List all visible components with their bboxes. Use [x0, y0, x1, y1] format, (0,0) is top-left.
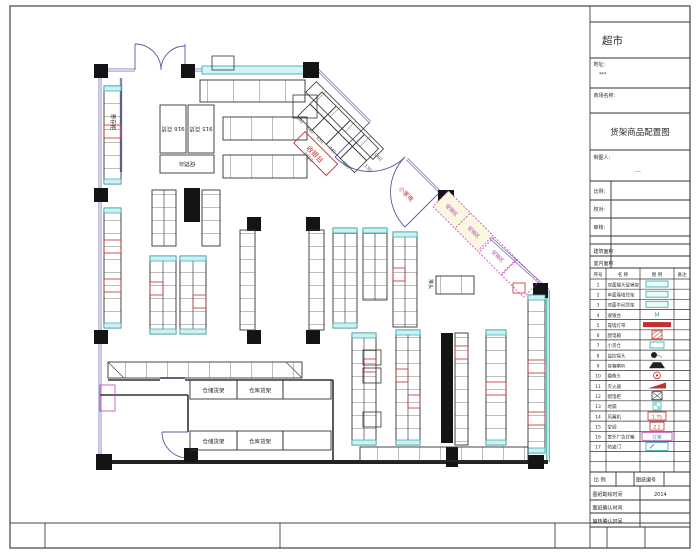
legend-row-name: 灭火器 — [608, 384, 622, 390]
column — [94, 64, 108, 78]
shelf-row-lower-left — [108, 362, 302, 378]
endcap — [528, 448, 545, 453]
legend-sym-middle-rack — [646, 301, 668, 307]
legend-row-no: 11 — [595, 384, 601, 390]
legend-sym-small-store — [650, 342, 664, 348]
dim-label: 650 — [341, 160, 351, 170]
legend-row-no: 15 — [595, 424, 601, 430]
legend-row-no: 9 — [597, 364, 600, 370]
legend-row-name: 收银台 — [608, 312, 622, 319]
legend-row-name: 双面中间货架 — [608, 302, 635, 309]
drafter-label: 制图人: — [594, 154, 611, 161]
locker-label: 寄存柜 — [109, 114, 117, 131]
column — [181, 64, 195, 78]
storage-label: 仓库货架 — [249, 387, 272, 395]
legend-row-no: 5 — [597, 323, 600, 329]
legend-row-no: 2 — [597, 293, 600, 299]
svg-text:2.2: 2.2 — [653, 424, 660, 430]
legend-sym-aircon: 2.2 — [650, 422, 664, 430]
endcap — [180, 329, 206, 334]
legend-row-name: 地漏 — [608, 403, 617, 410]
legend-sym-security-door — [646, 442, 668, 450]
column — [306, 217, 320, 231]
column — [94, 188, 108, 202]
endcap — [396, 440, 420, 445]
review-confirm-label: 审核确认时间 — [593, 518, 623, 525]
pile-head-label: 堆头 — [427, 279, 434, 289]
legend-sym-monitor — [651, 352, 662, 358]
storage-label: 仓储货架 — [202, 387, 225, 395]
endcap — [363, 228, 387, 233]
appliances-label: 小家电 — [397, 185, 415, 203]
dim-label: 650 — [315, 135, 325, 145]
endcap — [486, 330, 506, 335]
legend-header-no: 序号 — [594, 271, 603, 278]
confirm-label: 图纸确认时间 — [593, 505, 623, 512]
endcap — [104, 179, 121, 184]
floor-plan: 仓储货架 仓库货架 仓储货架 仓库货架 收银台 促销区 促销区 促销区 — [94, 44, 548, 470]
column — [306, 330, 320, 344]
legend-row-name: 监控探头 — [608, 352, 626, 359]
storage-label: 仓库货架 — [249, 438, 272, 446]
legend-row-name: 配电箱 — [608, 332, 622, 339]
survey-value: 2014 — [654, 492, 667, 498]
svg-text:1.75: 1.75 — [652, 414, 662, 420]
storage-area: 仓储货架 仓库货架 仓储货架 仓库货架 — [190, 380, 331, 450]
storage-label: 仓储货架 — [202, 438, 225, 446]
building-area-label: 建筑面积 — [594, 248, 614, 255]
legend-row-name: 单面靠墙货架 — [608, 292, 635, 299]
legend-sym-power-cabinet — [652, 392, 662, 400]
promo-table-label: 促销台 — [178, 160, 195, 168]
legend-table: 序号 名 称 图 例 备注 1 双面端头促销架 2 单面靠墙货架 3 双面中间货… — [590, 268, 690, 472]
shelf-row-bottom — [360, 447, 528, 461]
legend-sym-extinguisher — [648, 383, 666, 389]
column — [303, 62, 319, 78]
gondola-single — [455, 333, 468, 445]
legend-row-no: 7 — [597, 343, 600, 349]
endcap — [396, 330, 420, 335]
drafter-value: ... — [635, 167, 641, 174]
legend-sym-wall-rack — [646, 291, 668, 297]
endcap — [104, 86, 121, 91]
legend-row-name: 靠墙灯带 — [608, 322, 626, 329]
legend-row-name: 小货仓 — [608, 342, 622, 349]
legend-row-name: 防盗门 — [608, 444, 622, 451]
shelf-row-mid-2 — [223, 155, 307, 178]
legend-row-no: 6 — [597, 333, 600, 339]
legend-row-no: 8 — [597, 353, 600, 359]
address-label: 地址: — [594, 61, 606, 68]
legend-header-name: 名 称 — [618, 271, 629, 278]
drawing-title: 货架商品配置图 — [610, 127, 670, 138]
gondola-single — [240, 230, 255, 330]
endcap — [104, 208, 121, 213]
column — [96, 454, 112, 470]
endcap — [333, 228, 357, 233]
legend-sym-cashier: M — [654, 312, 659, 319]
proof-label: 校对: — [594, 206, 606, 213]
storage-rack — [283, 431, 331, 450]
dim-label: 130 — [363, 163, 373, 173]
legend-sym-light-strip — [643, 322, 671, 327]
legend-row-no: 3 — [597, 303, 600, 309]
wall-run-right — [528, 295, 545, 453]
legend-row-no: 4 — [597, 313, 600, 319]
legend-row-name: 音箱喇叭 — [608, 363, 626, 370]
scale-label: 比例: — [594, 188, 606, 195]
floor-plan-svg: 超市 地址: *** 商场名称: 货架商品配置图 制图人: ... 比例: 校对… — [0, 0, 700, 555]
survey-label: 图纸勘绘时间 — [593, 491, 623, 498]
legend-grid — [590, 268, 690, 472]
drawing-no-label: 图纸编号 — [636, 477, 656, 484]
gondola — [486, 330, 506, 445]
endcap — [104, 323, 121, 328]
shelf-row-top — [200, 80, 305, 102]
endcap — [150, 329, 176, 334]
endcap — [333, 323, 357, 328]
gondola-single — [309, 230, 324, 330]
endcap — [486, 440, 506, 445]
storage-rack — [283, 380, 331, 399]
wall-run-left-2 — [104, 208, 121, 328]
legend-row-name: 室外广告灯箱 — [608, 434, 635, 441]
legend-row-no: 12 — [595, 394, 601, 400]
legend-row-no: 14 — [595, 414, 601, 420]
column-block — [184, 188, 200, 222]
svg-text:灯箱: 灯箱 — [653, 434, 662, 441]
scale2-label: 比 例 — [594, 477, 606, 484]
legend-row-name: 空调 — [608, 423, 617, 430]
shelf-row-mid-1 — [223, 117, 307, 140]
magenta-box — [100, 385, 115, 411]
legend-sym-lightbox: 灯箱 — [642, 432, 672, 440]
legend-row-name: 风幕机 — [608, 413, 622, 420]
pile-block — [436, 276, 474, 294]
endcap — [352, 333, 376, 338]
column — [247, 217, 261, 231]
column — [94, 330, 108, 344]
address-value: *** — [599, 72, 607, 78]
entry-door-left — [135, 44, 161, 70]
drawing-sheet: 超市 地址: *** 商场名称: 货架商品配置图 制图人: ... 比例: 校对… — [0, 0, 700, 555]
dept-916-label: 916 百货 — [161, 125, 185, 133]
legend-header-symbol: 图 例 — [652, 271, 663, 278]
solid-partition — [441, 333, 453, 443]
legend-row-name: 摄像头 — [608, 373, 622, 380]
endcap — [352, 440, 376, 445]
legend-row-no: 16 — [595, 435, 601, 441]
endcap — [393, 232, 417, 237]
project-name: 超市 — [602, 34, 623, 47]
legend-row-no: 17 — [595, 445, 601, 451]
legend-row-no: 1 — [597, 282, 600, 288]
legend-sym-speaker — [649, 362, 665, 368]
legend-row-no: 10 — [595, 374, 601, 380]
legend-sym-camera — [654, 372, 661, 379]
legend-header-note: 备注 — [678, 271, 687, 278]
endcap — [150, 256, 176, 261]
legend-sym-drain — [653, 402, 661, 410]
dept-915-label: 915 百货 — [189, 125, 213, 133]
endcap — [528, 295, 545, 300]
legend-sym-power-box — [652, 331, 662, 339]
wall-run-left-1 — [104, 86, 121, 184]
legend-row-no: 13 — [595, 404, 601, 410]
column — [528, 455, 544, 469]
review-label: 审核: — [594, 224, 606, 231]
legend-row-name: 双面端头促销架 — [608, 281, 640, 288]
legend-row-name: 配电柜 — [608, 393, 622, 400]
legend-sym-air-curtain: 1.75 — [648, 412, 666, 420]
endcap — [180, 256, 206, 261]
legend-sym-endcap-rack — [646, 281, 668, 287]
column — [247, 330, 261, 344]
indoor-area-label: 室内面积 — [594, 260, 614, 267]
grid-block — [202, 190, 220, 246]
store-name-label: 商场名称: — [594, 92, 616, 99]
